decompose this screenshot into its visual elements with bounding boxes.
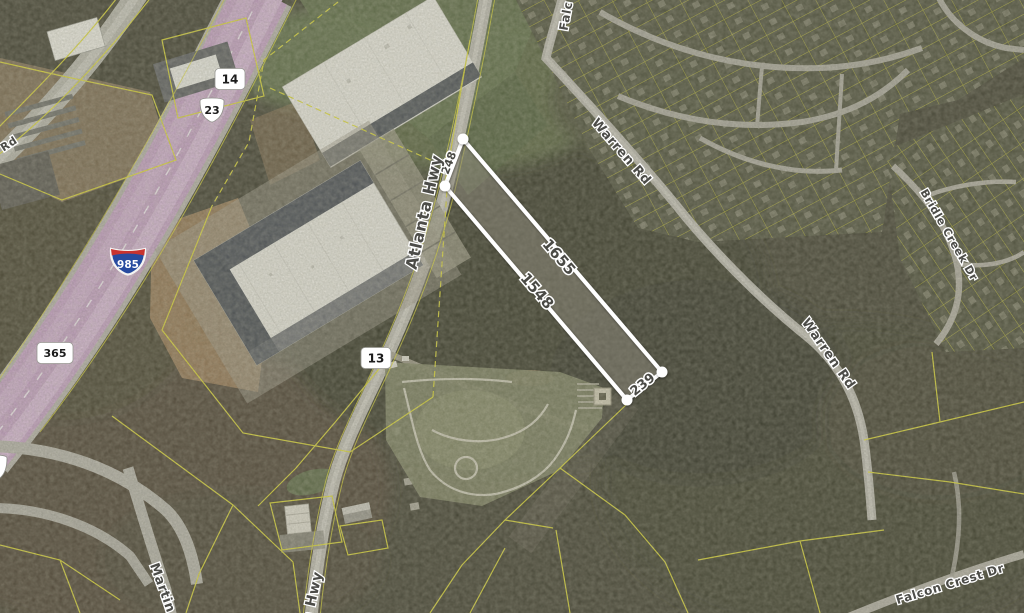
state-route-13-shield: 13 — [361, 348, 391, 369]
parcel-vertex-handle[interactable] — [458, 134, 469, 145]
svg-text:365: 365 — [44, 347, 67, 360]
aerial-parcel-map: 1655 1548 239 248 14 23 985 365 13 3 — [0, 0, 1024, 613]
svg-text:985: 985 — [117, 259, 139, 271]
svg-text:3: 3 — [0, 462, 1, 475]
state-route-14-shield: 14 — [215, 69, 245, 90]
parcel-vertex-handle[interactable] — [440, 181, 451, 192]
state-route-365-shield: 365 — [37, 343, 73, 364]
svg-text:14: 14 — [222, 73, 239, 87]
image-grain-dark — [0, 0, 1024, 613]
svg-text:23: 23 — [204, 104, 219, 117]
svg-text:13: 13 — [368, 352, 385, 366]
parcel-vertex-handle[interactable] — [657, 367, 668, 378]
parcel-vertex-handle[interactable] — [622, 395, 633, 406]
map-canvas[interactable]: 1655 1548 239 248 14 23 985 365 13 3 — [0, 0, 1024, 613]
